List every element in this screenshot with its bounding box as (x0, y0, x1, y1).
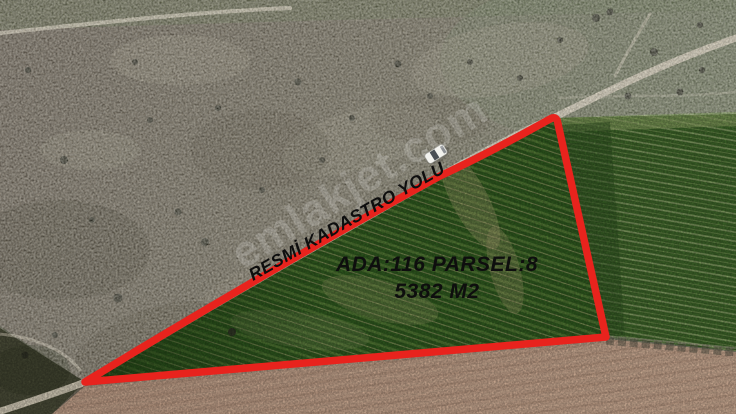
aerial-photo-svg: emlakjet.com RESMİ KADASTRO YOLU ADA:116… (0, 0, 736, 414)
aerial-photo: emlakjet.com RESMİ KADASTRO YOLU ADA:116… (0, 0, 736, 414)
parcel-info-label: ADA:116 PARSEL:8 (335, 253, 538, 276)
parcel-area-label: 5382 M2 (394, 280, 479, 303)
